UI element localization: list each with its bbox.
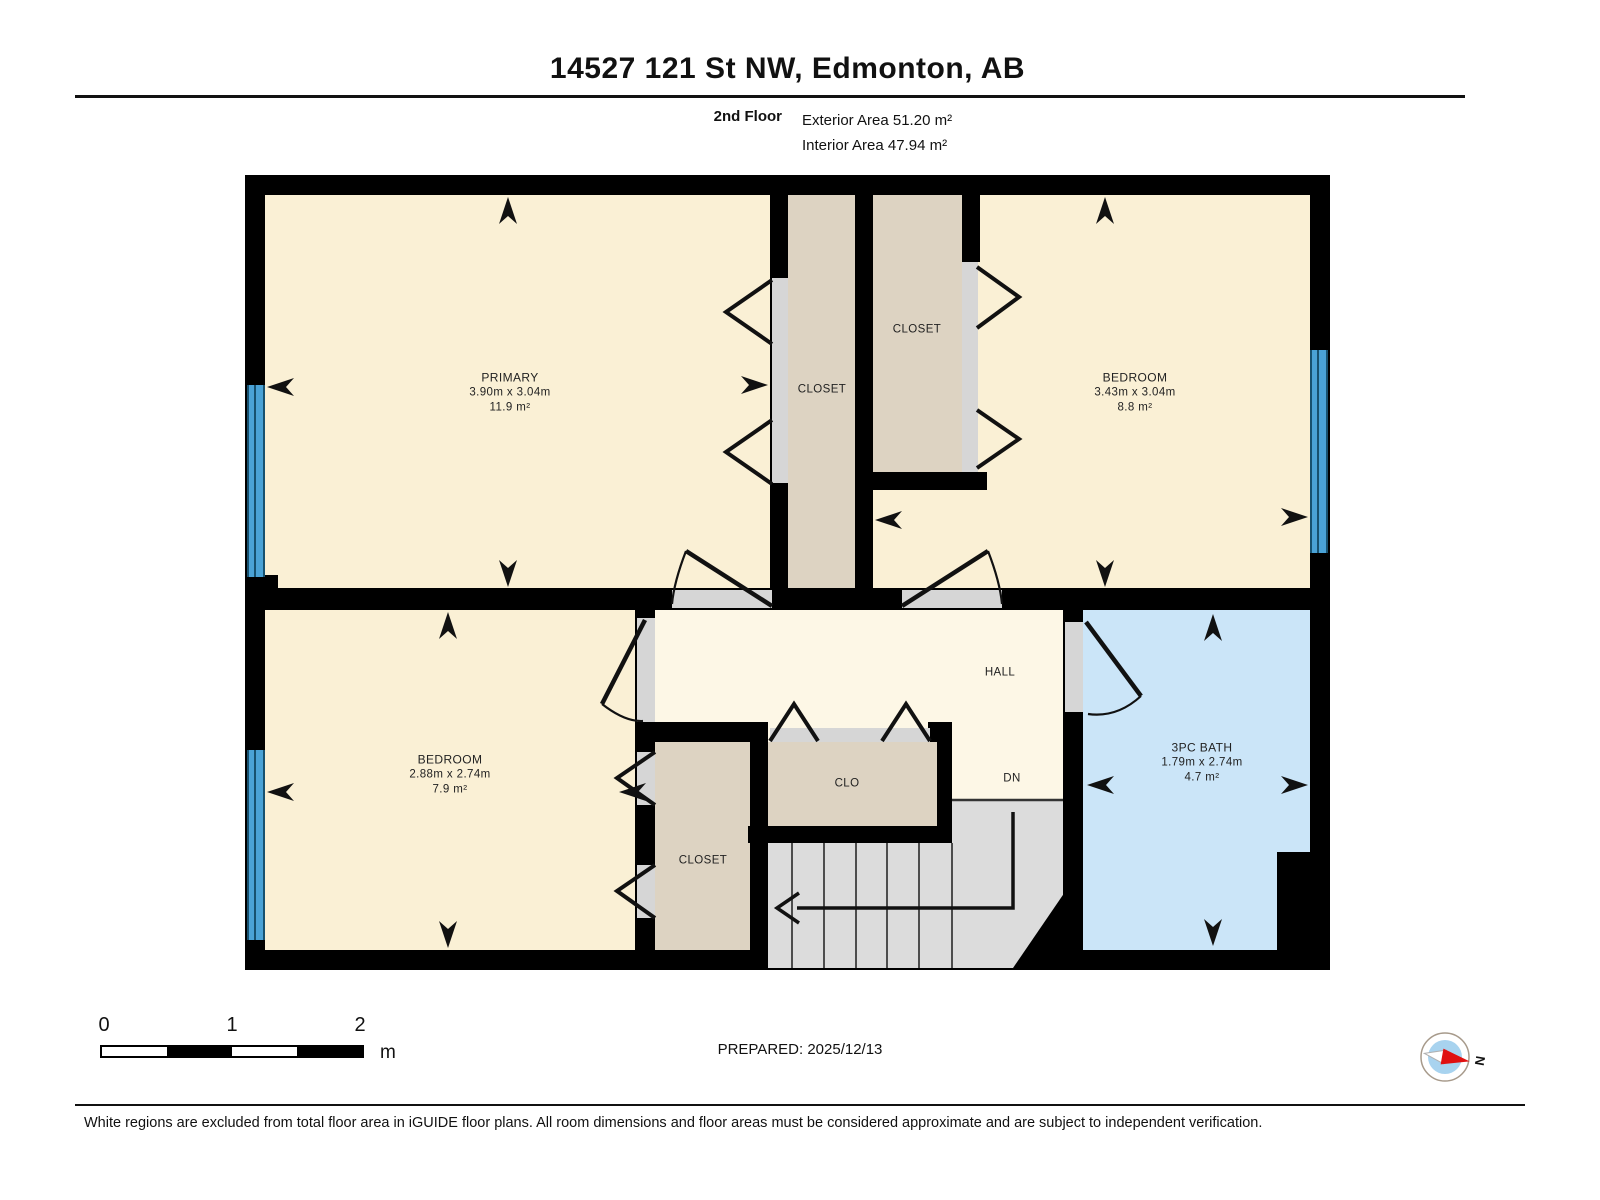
- room-name: 3PC BATH: [1161, 741, 1242, 756]
- wall-bath-notch: [1277, 852, 1330, 950]
- window-primary-left: [247, 385, 265, 577]
- scale-tick-0: 0: [98, 1014, 109, 1037]
- label-closet-middle: CLOSET: [798, 383, 846, 398]
- label-clo: CLO: [835, 777, 860, 792]
- window-bedroom-left: [247, 750, 265, 940]
- floorplan-canvas: PRIMARY 3.90m x 3.04m 11.9 m² BEDROOM 3.…: [245, 175, 1330, 970]
- threshold-bath-door: [1065, 622, 1083, 712]
- page-title: 14527 121 St NW, Edmonton, AB: [0, 52, 1575, 86]
- scale-tick-1: 1: [226, 1014, 237, 1037]
- wall-closet-top-bottom: [855, 472, 987, 490]
- scale-segment: [232, 1047, 297, 1056]
- scale-tick-2: 2: [354, 1014, 365, 1037]
- wall-clo-bottom: [748, 826, 952, 843]
- room-area: 4.7 m²: [1161, 771, 1242, 786]
- wall-closet-bottom-top: [635, 722, 768, 742]
- scale-segment: [167, 1047, 232, 1056]
- threshold-closet-top-bifold: [962, 262, 978, 472]
- wall-closet-bottom-mid-stub: [637, 805, 655, 865]
- label-closet-bottom: CLOSET: [679, 854, 727, 869]
- room-dimensions: 3.43m x 3.04m: [1094, 386, 1175, 401]
- window-bedroom-right: [1310, 350, 1328, 553]
- scale-segment: [297, 1047, 362, 1056]
- header-divider: [75, 95, 1465, 98]
- compass-north-label: N: [1472, 1055, 1488, 1067]
- footer-divider: [75, 1104, 1525, 1106]
- label-primary: PRIMARY 3.90m x 3.04m 11.9 m²: [469, 371, 550, 416]
- label-bath: 3PC BATH 1.79m x 2.74m 4.7 m²: [1161, 741, 1242, 786]
- area-summary: Exterior Area 51.20 m² Interior Area 47.…: [802, 108, 1122, 158]
- stair-landing-floor: [952, 800, 1063, 843]
- room-name: BEDROOM: [409, 753, 490, 768]
- room-name: PRIMARY: [469, 371, 550, 386]
- threshold-closet-middle-bifold: [772, 278, 788, 483]
- wall-closet-top-stub: [962, 195, 980, 262]
- threshold-primary-door: [672, 590, 772, 608]
- room-name: BEDROOM: [1094, 371, 1175, 386]
- stairs-floor: [768, 843, 1063, 968]
- threshold-clo-bifold: [770, 728, 930, 742]
- room-dimensions: 2.88m x 2.74m: [409, 768, 490, 783]
- label-hall: HALL: [985, 666, 1015, 681]
- prepared-date: PREPARED: 2025/12/13: [660, 1041, 940, 1058]
- label-bedroom-left: BEDROOM 2.88m x 2.74m 7.9 m²: [409, 753, 490, 798]
- closet-middle-floor: [788, 195, 855, 610]
- label-bedroom-right: BEDROOM 3.43m x 3.04m 8.8 m²: [1094, 371, 1175, 416]
- interior-area: Interior Area 47.94 m²: [802, 133, 1122, 158]
- wall-closet-middle-right: [855, 195, 873, 610]
- closet-bottom-floor: [655, 742, 750, 950]
- room-dimensions: 1.79m x 2.74m: [1161, 756, 1242, 771]
- compass-icon: N: [1400, 1026, 1510, 1090]
- wall-clo-top-stub: [928, 722, 952, 742]
- scale-bar: [100, 1045, 364, 1058]
- floorplan-page: 14527 121 St NW, Edmonton, AB 2nd Floor …: [0, 0, 1600, 1200]
- room-dimensions: 3.90m x 3.04m: [469, 386, 550, 401]
- room-area: 8.8 m²: [1094, 401, 1175, 416]
- footer-disclaimer: White regions are excluded from total fl…: [84, 1115, 1524, 1131]
- exterior-area: Exterior Area 51.20 m²: [802, 108, 1122, 133]
- scale-segment: [102, 1047, 167, 1056]
- threshold-bedroom-left-door: [637, 618, 655, 722]
- room-area: 7.9 m²: [409, 783, 490, 798]
- threshold-bedroom-right-door: [902, 590, 1002, 608]
- wall-divider-horizontal: [245, 588, 1330, 610]
- scale-unit: m: [380, 1042, 396, 1064]
- floor-name: 2nd Floor: [560, 108, 782, 125]
- room-area: 11.9 m²: [469, 401, 550, 416]
- wall-left-junction-block: [265, 575, 278, 610]
- label-dn: DN: [1003, 772, 1020, 787]
- label-closet-top: CLOSET: [893, 323, 941, 338]
